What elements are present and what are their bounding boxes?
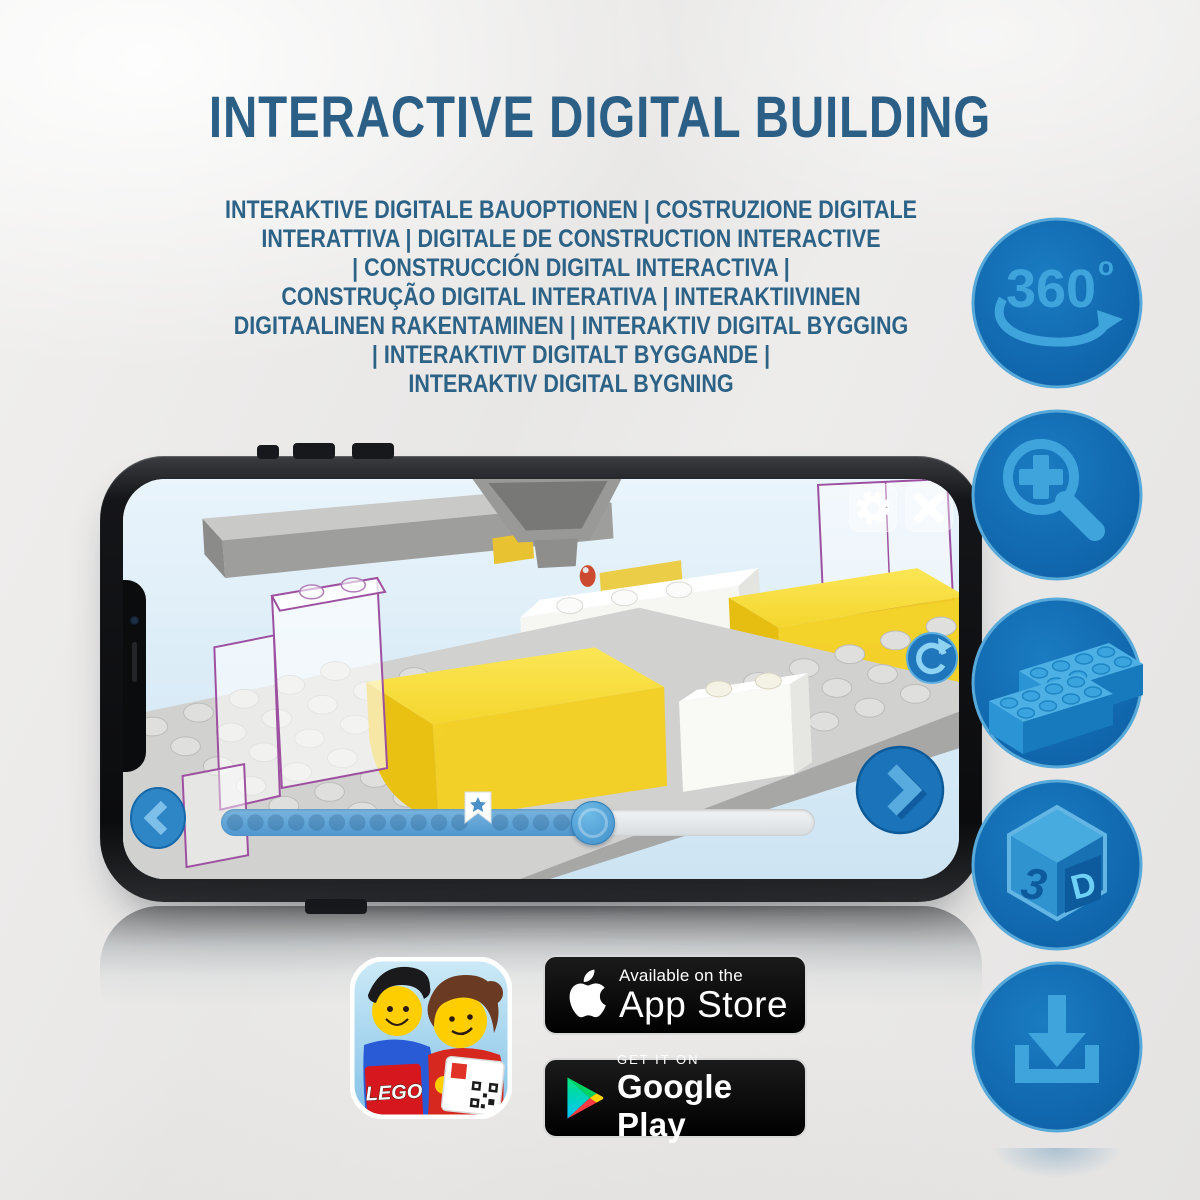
- close-button[interactable]: [905, 484, 953, 532]
- rotate-model-button[interactable]: [905, 631, 959, 685]
- phone-notch: [123, 580, 146, 772]
- phone-mockup: [100, 456, 982, 902]
- lego-logo: LEGO: [364, 1064, 424, 1119]
- feature-circle-360: 360 o: [969, 215, 1145, 391]
- google-play-badge[interactable]: GET IT ON Google Play: [543, 1058, 807, 1138]
- app-store-tagline: Available on the: [619, 966, 788, 985]
- feature-circle-3d: 3 D: [969, 777, 1145, 953]
- phone-reflection: [100, 906, 982, 1041]
- feature-circle-zoom: [969, 407, 1145, 583]
- marketing-graphic: INTERACTIVE DIGITAL BUILDING INTERAKTIVE…: [0, 0, 1200, 1200]
- earpiece-speaker: [132, 642, 137, 682]
- lego-app-icon[interactable]: LEGO: [350, 957, 512, 1119]
- progress-knob[interactable]: [571, 801, 615, 845]
- subtitle-line: INTERAKTIVE DIGITALE BAUOPTIONEN | COSTR…: [225, 196, 917, 225]
- svg-text:LEGO: LEGO: [365, 1081, 423, 1106]
- phone-screen: [123, 479, 959, 879]
- fire-extinguisher-piece: [580, 565, 596, 587]
- app-store-badge[interactable]: Available on the App Store: [543, 955, 807, 1035]
- subtitle-line: DIGITAALINEN RAKENTAMINEN | INTERAKTIV D…: [225, 312, 917, 341]
- google-play-tagline: GET IT ON: [617, 1052, 805, 1068]
- apple-logo-icon: [565, 969, 607, 1021]
- progress-fill: [221, 809, 603, 836]
- circle-reflection: [969, 1148, 1145, 1200]
- previous-step-button[interactable]: [130, 787, 186, 849]
- feature-circle-bricks: [969, 595, 1145, 771]
- svg-text:o: o: [1098, 251, 1114, 281]
- feature-circle-download: [969, 959, 1145, 1135]
- build-progress-bar[interactable]: [221, 809, 815, 836]
- next-step-button[interactable]: [855, 745, 945, 835]
- google-play-name: Google Play: [617, 1068, 805, 1144]
- rotate-icon: [905, 631, 959, 685]
- subtitle-line: | CONSTRUCCIÓN DIGITAL INTERACTIVA |: [225, 254, 917, 283]
- settings-button[interactable]: [849, 484, 897, 532]
- volume-down-button: [352, 443, 394, 459]
- front-camera: [130, 616, 139, 625]
- bookmark-star-marker[interactable]: [464, 791, 492, 833]
- progress-step-dots: [221, 809, 603, 836]
- white-brick: [679, 673, 812, 792]
- subtitle-line: CONSTRUÇÃO DIGITAL INTERATIVA | INTERAKT…: [225, 283, 917, 312]
- mute-switch: [257, 445, 279, 459]
- volume-up-button: [293, 443, 335, 459]
- google-play-icon: [565, 1076, 605, 1120]
- subtitle-line: | INTERAKTIVT DIGITALT BYGGANDE |: [225, 341, 917, 370]
- knob-ring: [578, 808, 608, 838]
- gear-icon: [850, 485, 896, 531]
- page-title: INTERACTIVE DIGITAL BUILDING: [209, 84, 991, 151]
- multilingual-subtitle: INTERAKTIVE DIGITALE BAUOPTIONEN | COSTR…: [225, 196, 917, 399]
- instruction-booklet: [441, 1056, 504, 1116]
- svg-text:360: 360: [1006, 259, 1096, 319]
- subtitle-line: INTERATTIVA | DIGITALE DE CONSTRUCTION I…: [225, 225, 917, 254]
- subtitle-line: INTERAKTIV DIGITAL BYGNING: [225, 370, 917, 399]
- app-store-name: App Store: [619, 985, 788, 1025]
- close-icon: [906, 485, 952, 531]
